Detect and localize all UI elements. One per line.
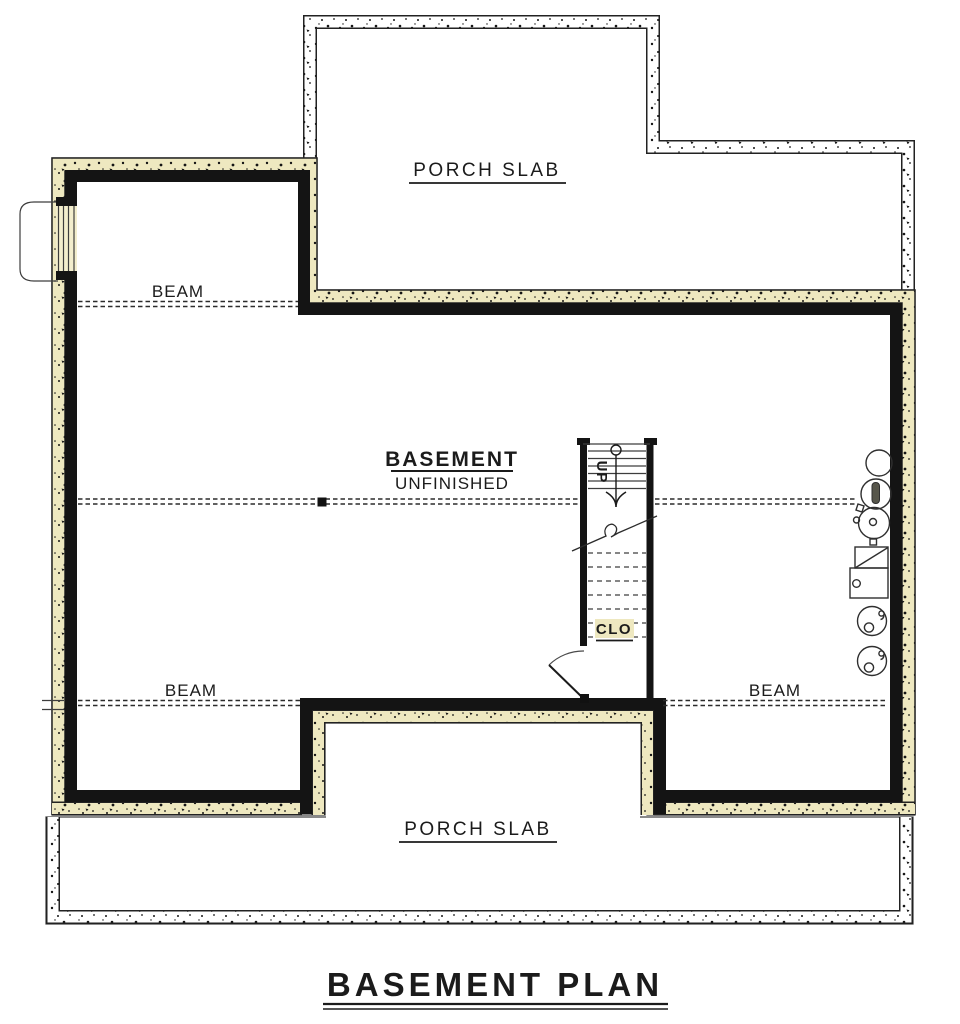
support-post: [318, 498, 327, 507]
window-jamb-top: [56, 197, 77, 206]
closet-door-leaf: [549, 665, 585, 700]
porch-notch-area: [326, 709, 640, 819]
porch-top-label: PORCH SLAB: [413, 160, 560, 181]
floor-plan-page: PORCH SLAB BEAM BASEMENT UNFINISHED UP C…: [0, 0, 960, 1024]
top-porch-band-edge: [310, 22, 908, 297]
top-porch-slab: [310, 22, 908, 297]
window-jamb-bottom: [56, 271, 77, 280]
stair-arrow-tail: [611, 445, 621, 455]
beam-label-upper-left: BEAM: [152, 282, 204, 301]
utility-fixtures: [850, 450, 892, 676]
title-block: BASEMENT PLAN: [323, 966, 668, 1009]
sheet-title: BASEMENT PLAN: [327, 966, 663, 1003]
stair-up-label: UP: [593, 461, 610, 484]
sump-pit-icon: [866, 450, 892, 476]
beam-label-lower-right: BEAM: [749, 681, 801, 700]
room-name-label: BASEMENT: [385, 448, 519, 471]
laundry-tub-icon: [858, 647, 887, 676]
floor-plan-drawing: PORCH SLAB BEAM BASEMENT UNFINISHED UP C…: [0, 0, 960, 1024]
beam-lines: [78, 302, 888, 706]
water-softener-icon: [861, 479, 891, 509]
top-porch-band: [310, 22, 908, 297]
wall-left-lower: [71, 271, 312, 796]
egress-window: [56, 206, 77, 271]
room-status-label: UNFINISHED: [395, 474, 509, 493]
closet-label: CLO: [596, 621, 632, 638]
bottom-porch-slab: [46, 709, 913, 924]
beam-label-lower-left: BEAM: [165, 681, 217, 700]
laundry-tub-icon: [858, 607, 887, 636]
closet-door-swing: [549, 651, 584, 665]
water-heater-icon: [854, 504, 890, 545]
furnace-icon: [850, 547, 888, 598]
porch-bottom-label: PORCH SLAB: [404, 819, 551, 840]
closet-door-hinge: [580, 694, 589, 703]
